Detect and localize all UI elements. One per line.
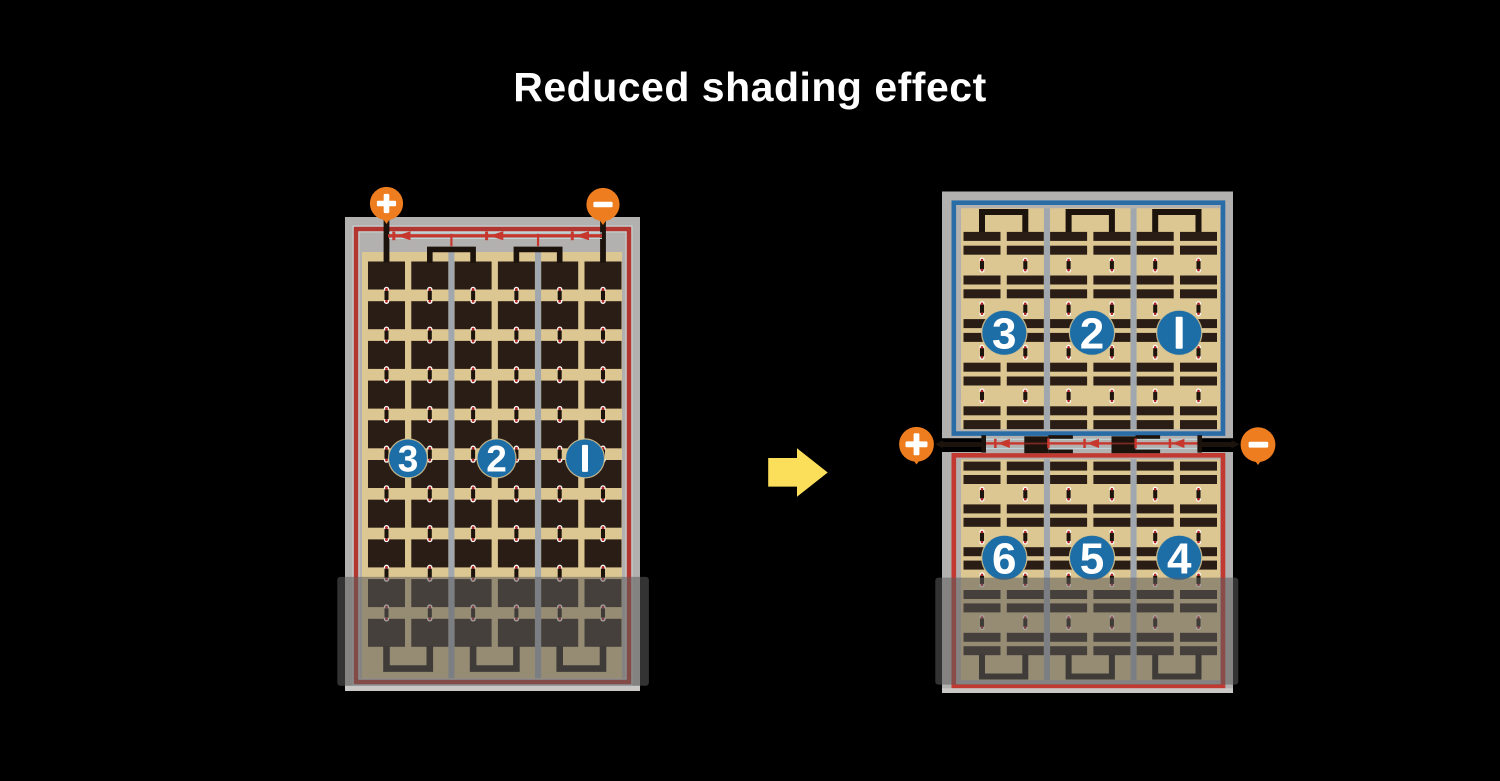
svg-text:2: 2 [486, 439, 507, 480]
svg-text:6: 6 [992, 534, 1016, 583]
svg-text:3: 3 [992, 309, 1016, 358]
svg-text:5: 5 [1080, 534, 1104, 583]
svg-text:3: 3 [398, 439, 419, 480]
svg-text:4: 4 [1167, 534, 1192, 583]
svg-text:Reduced shading effect: Reduced shading effect [513, 64, 986, 110]
svg-text:2: 2 [1080, 309, 1104, 358]
